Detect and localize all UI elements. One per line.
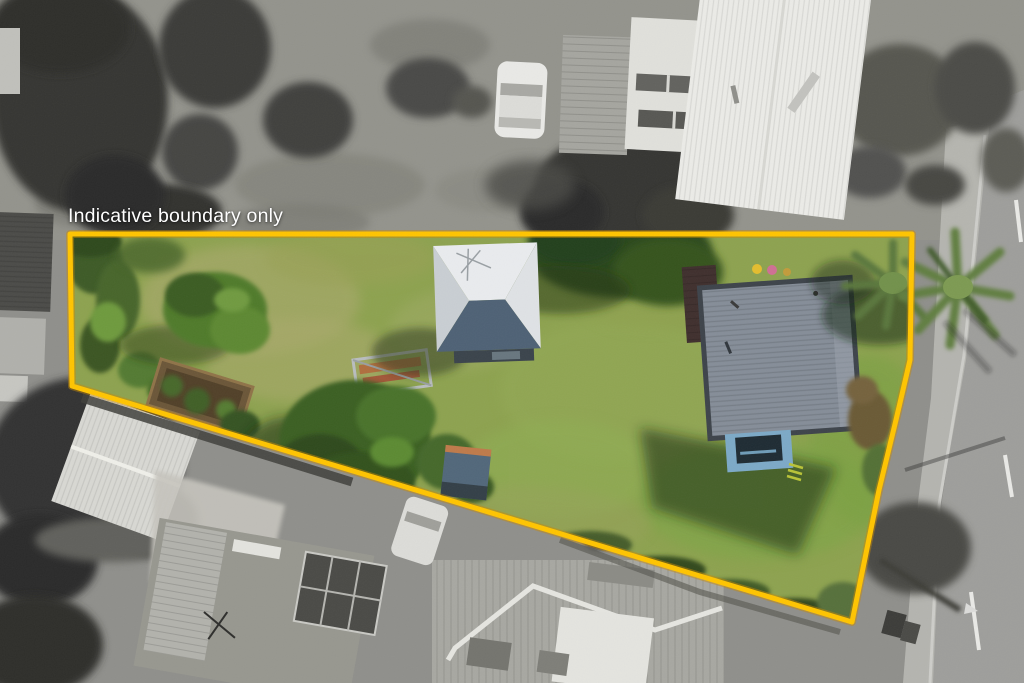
photo-grain	[0, 0, 1024, 683]
aerial-scene	[0, 0, 1024, 683]
aerial-property-photo: Indicative boundary only	[0, 0, 1024, 683]
boundary-label: Indicative boundary only	[68, 205, 283, 228]
